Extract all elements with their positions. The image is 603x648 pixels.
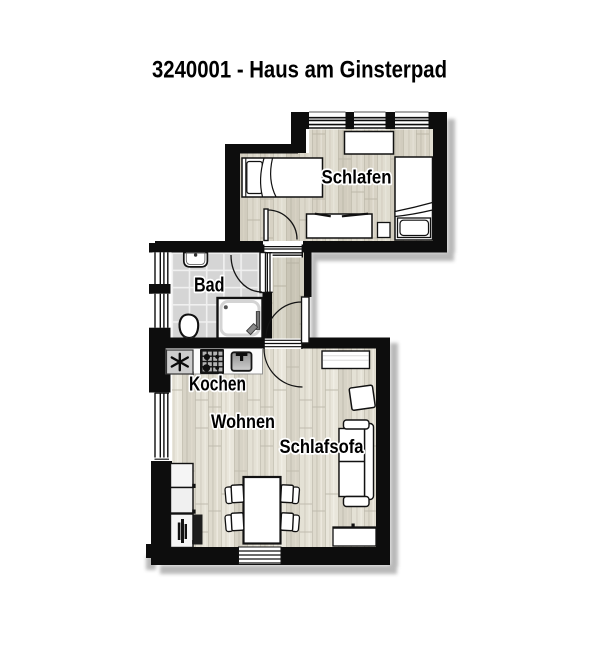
svg-text:Kochen: Kochen [189,374,246,396]
svg-text:Wohnen: Wohnen [211,411,275,433]
svg-text:Schlafsofa: Schlafsofa [280,436,364,458]
svg-text:Bad: Bad [194,274,225,297]
svg-text:3240001 - Haus am Ginsterpad: 3240001 - Haus am Ginsterpad [152,57,447,84]
svg-text:Schlafen: Schlafen [322,168,392,189]
